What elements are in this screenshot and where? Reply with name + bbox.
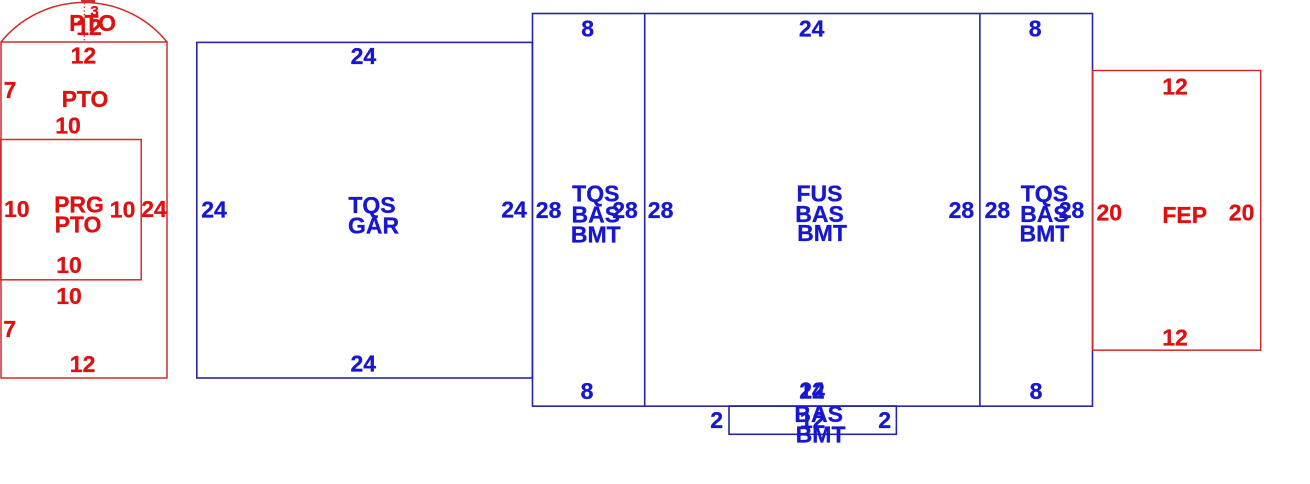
- svg-text:24: 24: [351, 43, 377, 69]
- svg-text:10: 10: [110, 197, 136, 223]
- svg-text:28: 28: [536, 197, 562, 223]
- svg-text:12: 12: [76, 14, 102, 40]
- svg-text:24: 24: [799, 16, 825, 42]
- svg-text:20: 20: [1229, 200, 1255, 226]
- svg-text:28: 28: [985, 197, 1011, 223]
- svg-text:BMT: BMT: [1019, 221, 1069, 247]
- svg-text:8: 8: [581, 16, 594, 42]
- svg-text:2: 2: [878, 407, 891, 433]
- svg-text:BMT: BMT: [796, 421, 846, 447]
- svg-text:12: 12: [71, 43, 97, 69]
- svg-text:12: 12: [1162, 74, 1188, 100]
- svg-text:2: 2: [710, 407, 723, 433]
- svg-text:FEP: FEP: [1162, 202, 1207, 228]
- svg-text:12: 12: [70, 351, 96, 377]
- svg-text:PTO: PTO: [55, 212, 102, 238]
- svg-text:12: 12: [1162, 325, 1188, 351]
- svg-text:10: 10: [56, 283, 82, 309]
- svg-text:8: 8: [1030, 378, 1043, 404]
- svg-text:24: 24: [141, 196, 167, 222]
- svg-text:BMT: BMT: [571, 221, 621, 247]
- svg-text:24: 24: [201, 197, 227, 223]
- svg-text:7: 7: [3, 316, 16, 342]
- svg-text:12: 12: [799, 378, 825, 404]
- svg-text:GAR: GAR: [348, 212, 400, 238]
- svg-text:28: 28: [612, 197, 638, 223]
- svg-text:28: 28: [949, 197, 975, 223]
- svg-text:10: 10: [4, 196, 30, 222]
- svg-text:24: 24: [351, 350, 377, 376]
- svg-text:PTO: PTO: [62, 86, 109, 112]
- svg-text:8: 8: [1029, 16, 1042, 42]
- svg-text:8: 8: [581, 378, 594, 404]
- svg-text:24: 24: [501, 197, 527, 223]
- svg-text:BMT: BMT: [797, 220, 847, 246]
- svg-text:20: 20: [1097, 200, 1123, 226]
- svg-text:10: 10: [55, 113, 81, 139]
- svg-text:7: 7: [4, 77, 17, 103]
- svg-text:28: 28: [648, 197, 674, 223]
- svg-text:28: 28: [1059, 197, 1085, 223]
- svg-text:10: 10: [56, 252, 82, 278]
